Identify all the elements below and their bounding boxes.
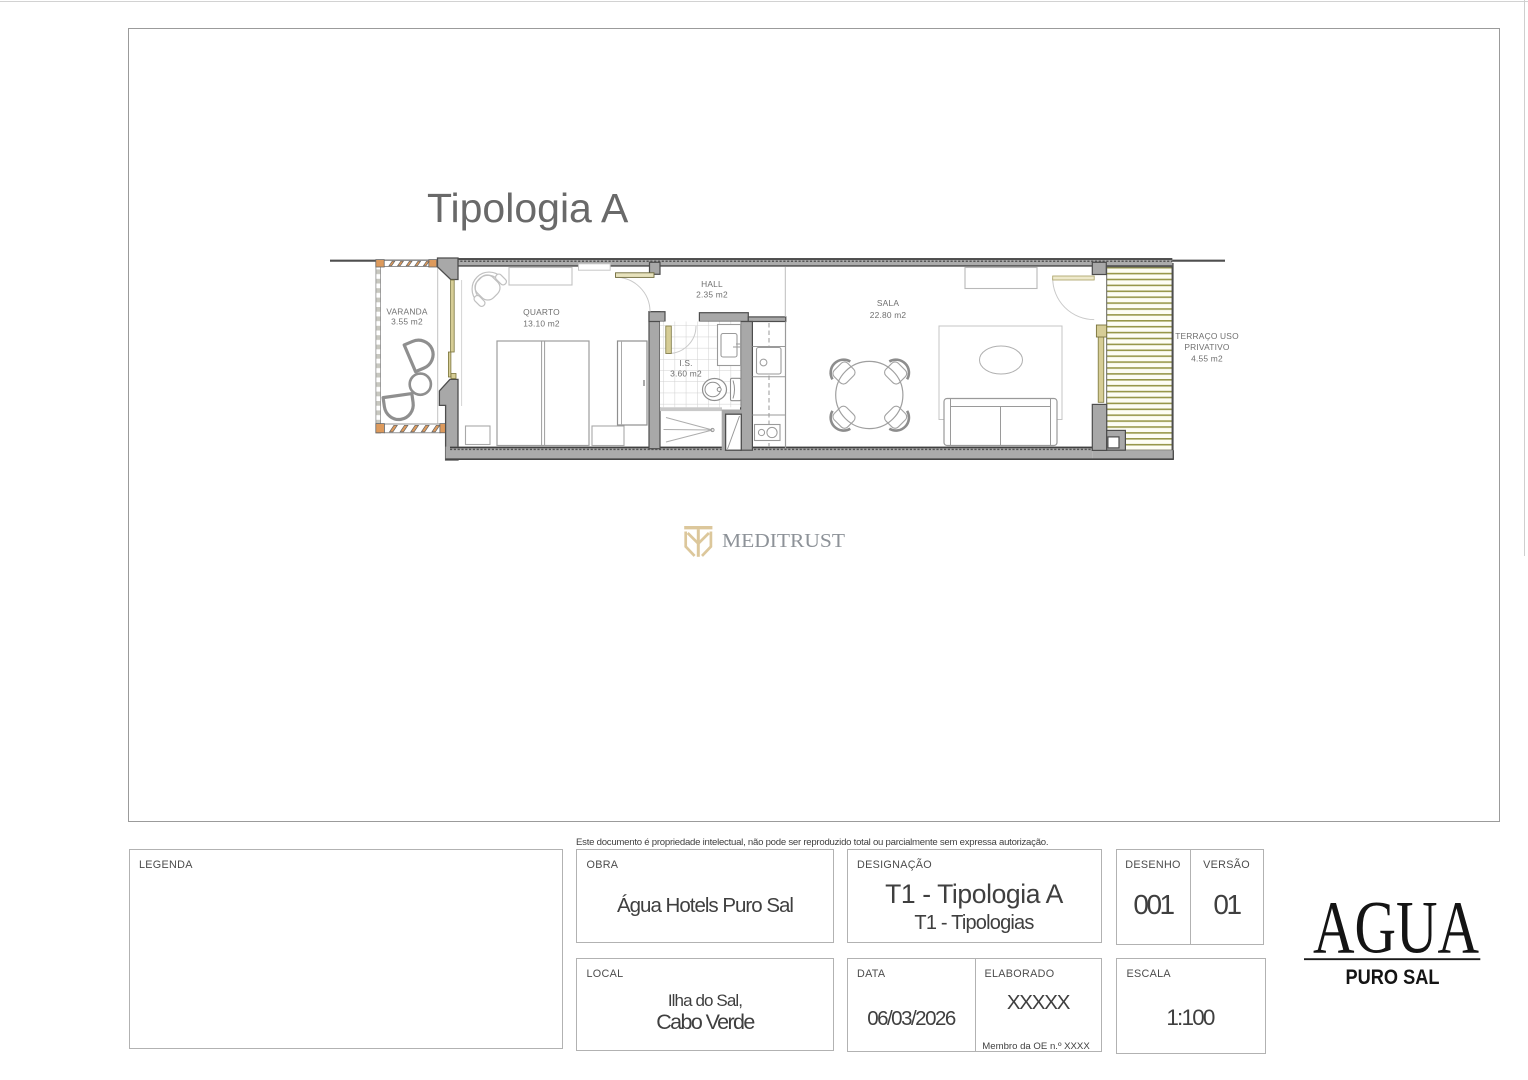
svg-text:TERRAÇO USO: TERRAÇO USO	[1175, 331, 1239, 341]
svg-text:AGUA: AGUA	[1313, 886, 1479, 969]
svg-text:PURO SAL: PURO SAL	[1346, 965, 1440, 989]
svg-text:2.35 m2: 2.35 m2	[696, 290, 728, 300]
svg-text:SALA: SALA	[877, 298, 899, 308]
svg-text:PRIVATIVO: PRIVATIVO	[1184, 342, 1230, 352]
svg-text:I.S.: I.S.	[679, 358, 692, 368]
svg-text:13.10 m2: 13.10 m2	[523, 318, 560, 328]
svg-text:QUARTO: QUARTO	[523, 307, 560, 317]
svg-text:4.55 m2: 4.55 m2	[1191, 354, 1223, 364]
svg-text:22.80 m2: 22.80 m2	[870, 310, 907, 320]
svg-text:MEDITRUST: MEDITRUST	[722, 530, 845, 552]
svg-text:VARANDA: VARANDA	[386, 307, 427, 317]
svg-text:3.55 m2: 3.55 m2	[391, 317, 423, 327]
svg-text:HALL: HALL	[701, 279, 723, 289]
svg-text:3.60 m2: 3.60 m2	[670, 369, 702, 379]
